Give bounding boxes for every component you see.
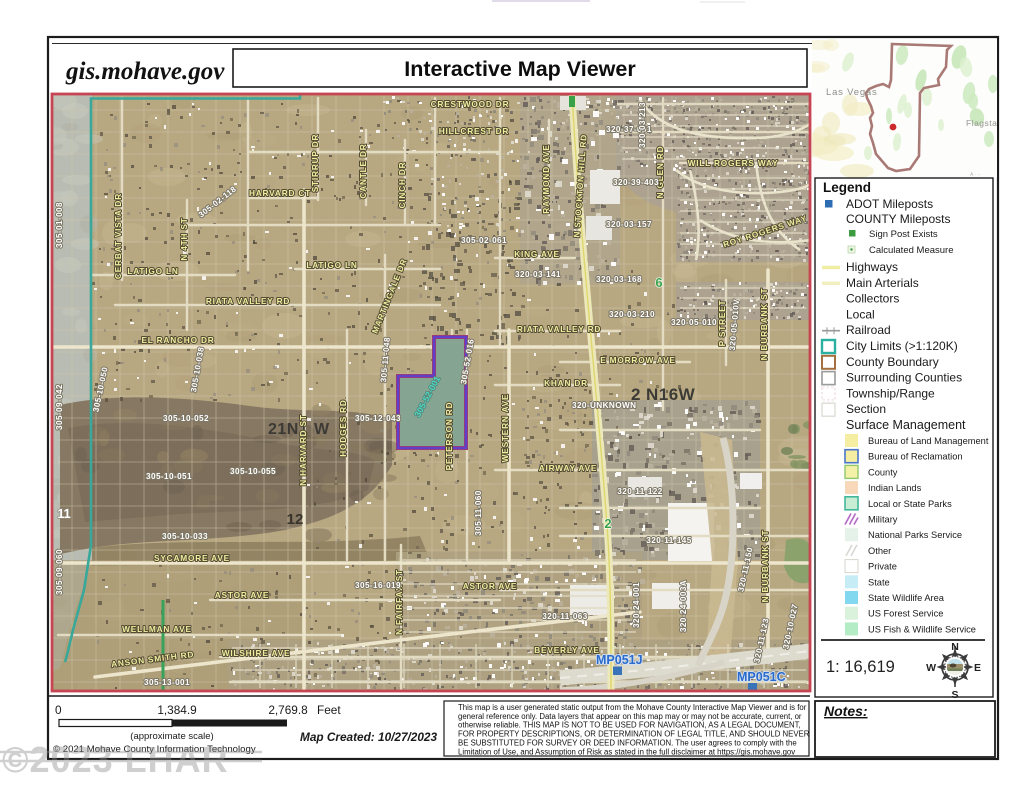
svg-text:Interactive Map Viewer: Interactive Map Viewer <box>404 57 636 81</box>
svg-text:E: E <box>974 662 981 674</box>
svg-text:Las Vegas: Las Vegas <box>826 87 878 98</box>
svg-text:Feet: Feet <box>317 703 341 717</box>
svg-text:Military: Military <box>868 515 898 525</box>
svg-text:County: County <box>868 467 898 477</box>
svg-text:Bureau of Land Management: Bureau of Land Management <box>868 436 989 446</box>
svg-text:Surrounding Counties: Surrounding Counties <box>846 371 962 385</box>
svg-text:FOR PROPERTY DESCRIPTIONS, OR: FOR PROPERTY DESCRIPTIONS, OR DETERMINAT… <box>458 730 810 739</box>
svg-text:N: N <box>951 641 959 653</box>
svg-text:Sign Post Exists: Sign Post Exists <box>869 229 938 240</box>
svg-text:US Fish & Wildlife Service: US Fish & Wildlife Service <box>868 624 976 634</box>
svg-text:Highways: Highways <box>846 260 898 274</box>
svg-text:1: 16,619: 1: 16,619 <box>826 658 895 676</box>
svg-text:2,769.8: 2,769.8 <box>268 703 308 717</box>
svg-text:Township/Range: Township/Range <box>846 386 935 400</box>
svg-text:State Wildlife Area: State Wildlife Area <box>868 593 945 603</box>
svg-text:Limitation of Use, and Assumpt: Limitation of Use, and Assumption of Ris… <box>458 747 795 756</box>
svg-text:Local or State Parks: Local or State Parks <box>868 499 952 509</box>
svg-text:W: W <box>926 662 936 674</box>
svg-text:ADOT Mileposts: ADOT Mileposts <box>846 197 933 211</box>
svg-text:0: 0 <box>55 703 62 717</box>
svg-text:©2023 LHAR: ©2023 LHAR <box>2 739 229 780</box>
svg-text:Main Arterials: Main Arterials <box>846 276 919 290</box>
svg-text:National Parks Service: National Parks Service <box>868 530 962 540</box>
svg-text:general reference only. Data l: general reference only. Data layers that… <box>458 712 802 721</box>
svg-text:Other: Other <box>868 546 891 556</box>
svg-text:Collectors: Collectors <box>846 292 899 306</box>
svg-text:Legend: Legend <box>823 180 871 195</box>
svg-text:This map is a user generated s: This map is a user generated static outp… <box>458 703 807 712</box>
svg-text:Calculated Measure: Calculated Measure <box>869 245 954 256</box>
svg-text:otherwise reliable. THIS MAP I: otherwise reliable. THIS MAP IS NOT TO B… <box>458 721 801 730</box>
svg-text:gis.mohave.gov: gis.mohave.gov <box>65 58 225 85</box>
svg-text:City Limits (>1:120K): City Limits (>1:120K) <box>846 339 958 353</box>
svg-text:US Forest Service: US Forest Service <box>868 609 943 619</box>
svg-text:Surface Management: Surface Management <box>846 418 966 432</box>
svg-text:A · ··: A · ·· <box>970 172 981 178</box>
svg-text:Map Created: 10/27/2023: Map Created: 10/27/2023 <box>300 730 437 744</box>
svg-text:State: State <box>868 577 890 587</box>
svg-text:Notes:: Notes: <box>824 703 868 719</box>
svg-text:Private: Private <box>868 562 897 572</box>
svg-text:BE SUBSTITUTED FOR SURVEY OR D: BE SUBSTITUTED FOR SURVEY OR DEED INFORM… <box>458 738 797 747</box>
svg-text:COUNTY Mileposts: COUNTY Mileposts <box>846 212 950 226</box>
svg-text:County Boundary: County Boundary <box>846 355 939 369</box>
svg-text:Section: Section <box>846 402 886 416</box>
svg-text:Indian Lands: Indian Lands <box>868 483 922 493</box>
svg-text:Flagsta: Flagsta <box>966 118 997 128</box>
svg-text:1,384.9: 1,384.9 <box>157 703 196 717</box>
svg-text:Local: Local <box>846 307 875 321</box>
svg-text:Bureau of Reclamation: Bureau of Reclamation <box>868 452 963 462</box>
svg-text:S: S <box>951 689 958 701</box>
svg-text:Railroad: Railroad <box>846 323 891 337</box>
